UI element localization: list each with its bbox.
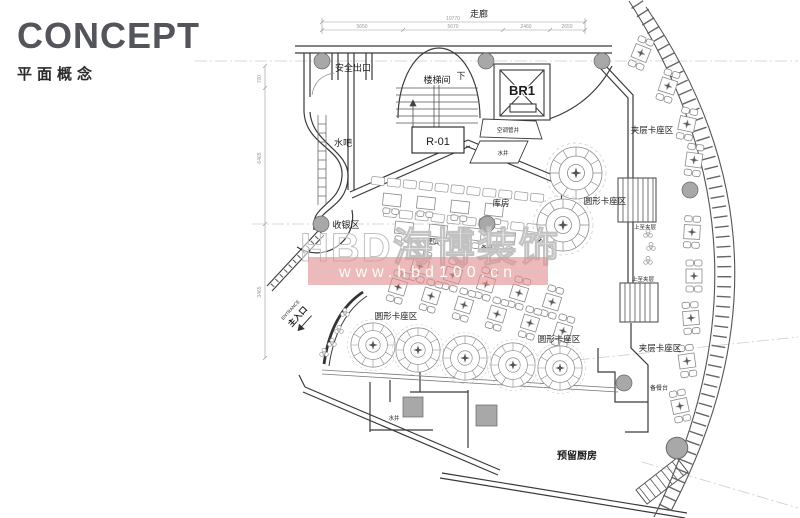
prep-counter-label: 备餐台 — [650, 384, 668, 392]
page-subtitle: 平面概念 — [17, 63, 200, 84]
mezz-booth-label-1: 夹层卡座区 — [631, 125, 674, 135]
concept-plan-page: CONCEPT 平面概念 — [0, 0, 800, 518]
up-to-mezz-label-1: 上至夹层 — [634, 223, 657, 231]
up-to-mezz-label-2: 上至夹层 — [632, 275, 655, 283]
stair-down-label: 下 — [456, 71, 465, 81]
dim-left-2: 6465 — [257, 152, 263, 163]
water-shaft-label: 水井 — [497, 149, 509, 157]
main-stairwell-treads — [396, 85, 478, 127]
dim-seg-2: 5670 — [447, 24, 458, 30]
round-booth-label-3: 圆形卡座区 — [538, 334, 581, 344]
water-bar-label: 水吧 — [334, 137, 352, 148]
mezz-booth-label-2: 夹层卡座区 — [639, 343, 682, 353]
page-title: CONCEPT — [17, 18, 200, 54]
water-well-label: 水井 — [388, 414, 400, 422]
round-booth-label-2: 圆形卡座区 — [375, 311, 418, 321]
dim-top-total: 10770 — [446, 16, 460, 22]
dim-left-1: 700 — [257, 75, 263, 84]
page-header: CONCEPT 平面概念 — [17, 18, 200, 84]
room-code-label: R-01 — [426, 136, 450, 148]
watermark: HBD海博装饰 www.hbd100.cn — [300, 226, 561, 285]
elevator-label: BR1 — [509, 83, 535, 98]
kitchen-label: 预留厨房 — [557, 449, 597, 462]
corridor-label: 走廊 — [470, 8, 488, 19]
round-booth-label-1: 圆形卡座区 — [584, 196, 627, 206]
watermark-url: www.hbd100.cn — [338, 264, 517, 281]
storage-label: 库房 — [492, 198, 509, 208]
ac-shaft-label: 空调管井 — [497, 126, 520, 134]
entrance-label: ENTRANCE 主入口 — [280, 299, 315, 334]
dim-seg-3: 2460 — [520, 24, 531, 30]
room-code-box: R-01 — [412, 127, 464, 153]
dim-seg-4: 2650 — [561, 24, 572, 30]
dim-seg-1: 5650 — [356, 24, 367, 30]
dim-left-3: 3465 — [257, 286, 263, 297]
safety-exit-label: 安全出口 — [335, 62, 371, 73]
stairwell-label: 楼梯间 — [423, 74, 450, 85]
